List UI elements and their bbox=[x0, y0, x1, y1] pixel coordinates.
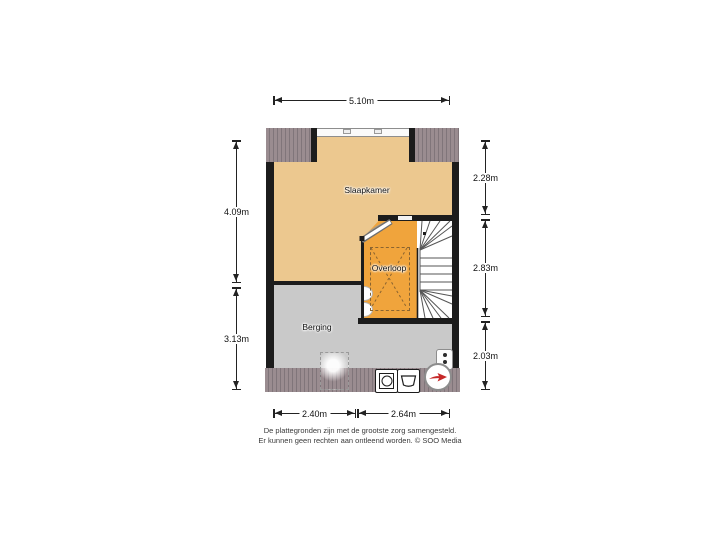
staircase bbox=[417, 221, 452, 318]
window-tick bbox=[343, 129, 351, 134]
dimension-top: 5.10m bbox=[273, 96, 450, 105]
window bbox=[317, 128, 409, 137]
sink-icon bbox=[397, 369, 420, 393]
sink-shape bbox=[398, 370, 419, 392]
room-label-slaapkamer: Slaapkamer bbox=[344, 185, 389, 195]
dimension-left-upper: 4.09m bbox=[232, 140, 241, 283]
wall-window-right bbox=[409, 128, 415, 162]
dimension-label: 4.09m bbox=[221, 207, 252, 217]
dimension-label: 2.40m bbox=[299, 409, 330, 419]
wall-bedroom-storage bbox=[274, 281, 364, 285]
dimension-label: 2.64m bbox=[388, 409, 419, 419]
wall-niche bbox=[398, 216, 412, 220]
window-tick bbox=[374, 129, 382, 134]
dimension-label: 2.03m bbox=[470, 351, 501, 361]
roof-slope-hatch-top-left bbox=[266, 128, 311, 162]
dimension-bottom-left: 2.40m bbox=[273, 409, 356, 418]
washing-machine-icon bbox=[375, 369, 398, 393]
boiler-dot bbox=[443, 353, 447, 357]
dimension-right-middle: 2.83m bbox=[481, 219, 490, 317]
roof-slope-hatch-top-right bbox=[415, 128, 459, 162]
skylight-dashed-marking bbox=[320, 352, 349, 390]
compass-north-arrow-icon bbox=[424, 363, 452, 391]
dimension-label: 3.13m bbox=[221, 334, 252, 344]
room-label-berging: Berging bbox=[302, 322, 331, 332]
dimension-label: 2.83m bbox=[470, 263, 501, 273]
washing-machine-drum bbox=[381, 376, 392, 387]
disclaimer-text: De plattegronden zijn met de grootste zo… bbox=[0, 426, 720, 446]
dimension-right-lower: 2.03m bbox=[481, 321, 490, 390]
north-arrow bbox=[429, 373, 447, 382]
headroom-dashed-marking bbox=[370, 247, 410, 311]
wall-overloop-bottom bbox=[358, 318, 452, 324]
floorplan: Slaapkamer Overloop Berging bbox=[265, 122, 460, 393]
wall-left bbox=[266, 162, 274, 368]
disclaimer-line-1: De plattegronden zijn met de grootste zo… bbox=[0, 426, 720, 436]
dimension-left-lower: 3.13m bbox=[232, 287, 241, 390]
wall-right bbox=[452, 162, 459, 368]
dimension-bottom-right: 2.64m bbox=[357, 409, 450, 418]
room-label-overloop: Overloop bbox=[372, 263, 407, 273]
dimension-label: 5.10m bbox=[346, 96, 377, 106]
dimension-label: 2.28m bbox=[470, 173, 501, 183]
disclaimer-line-2: Er kunnen geen rechten aan ontleend word… bbox=[0, 436, 720, 446]
dimension-right-upper: 2.28m bbox=[481, 140, 490, 215]
